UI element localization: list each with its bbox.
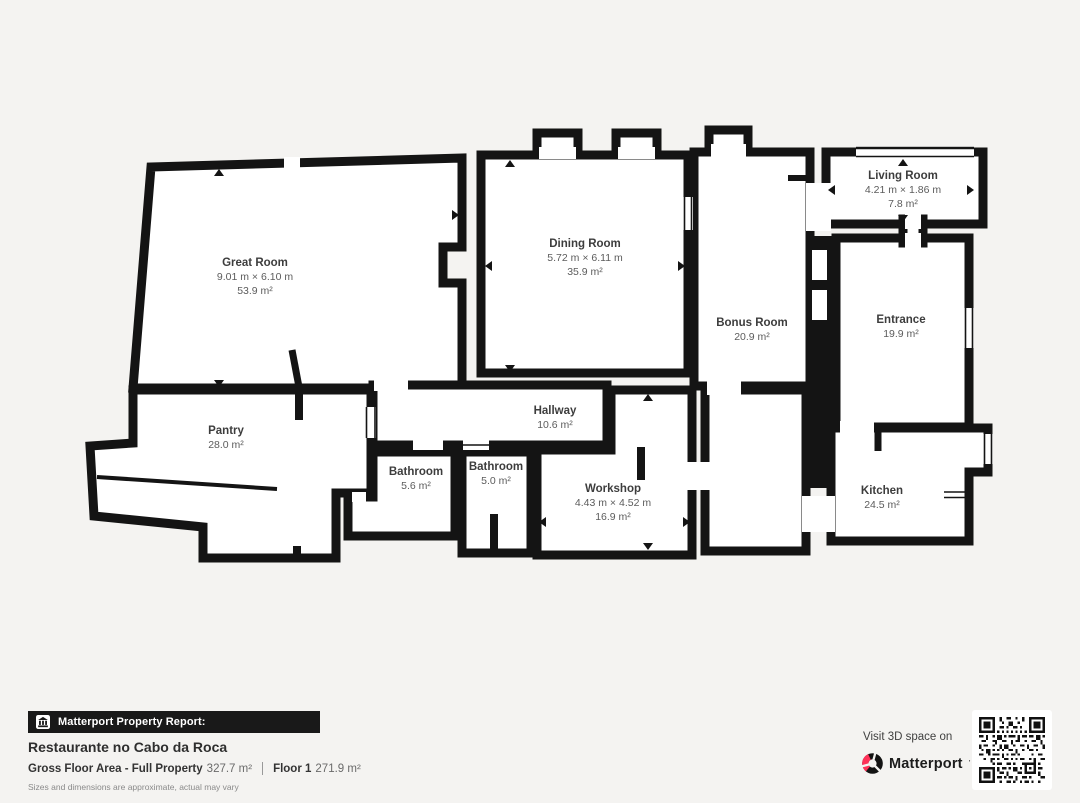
gross-floor-area-value: 327.7 m² bbox=[207, 763, 252, 775]
room-shape-store bbox=[705, 390, 806, 551]
room-area: 35.9 m² bbox=[547, 265, 622, 279]
room-area: 20.9 m² bbox=[716, 330, 788, 344]
report-bar-label: Matterport Property Report: bbox=[58, 716, 206, 728]
room-label-hallway: Hallway 10.6 m² bbox=[534, 404, 577, 432]
room-dimensions: 5.72 m × 6.11 m bbox=[547, 251, 622, 265]
room-name: Bathroom bbox=[389, 465, 443, 479]
room-name: Kitchen bbox=[861, 484, 903, 498]
room-dimensions: 9.01 m × 6.10 m bbox=[217, 270, 293, 284]
report-header-bar: Matterport Property Report: bbox=[28, 711, 320, 733]
floor-value: 271.9 m² bbox=[315, 763, 360, 775]
room-label-bathroom-2: Bathroom 5.0 m² bbox=[469, 460, 523, 488]
room-name: Entrance bbox=[876, 313, 925, 327]
room-name: Dining Room bbox=[547, 237, 622, 251]
room-label-bonus-room: Bonus Room 20.9 m² bbox=[716, 316, 788, 344]
building-icon bbox=[36, 715, 50, 729]
room-dimensions: 4.43 m × 4.52 m bbox=[575, 496, 651, 510]
room-shape-kitchen bbox=[831, 428, 988, 541]
room-area: 24.5 m² bbox=[861, 498, 903, 512]
room-area: 28.0 m² bbox=[208, 438, 244, 452]
floor-plan bbox=[0, 0, 1080, 803]
room-label-kitchen: Kitchen 24.5 m² bbox=[861, 484, 903, 512]
room-area: 10.6 m² bbox=[534, 418, 577, 432]
gross-floor-area-label: Gross Floor Area - Full Property bbox=[28, 763, 203, 775]
room-name: Bonus Room bbox=[716, 316, 788, 330]
room-name: Workshop bbox=[575, 482, 651, 496]
visit-3d-text: Visit 3D space on bbox=[863, 731, 952, 743]
room-label-workshop: Workshop 4.43 m × 4.52 m 16.9 m² bbox=[575, 482, 651, 524]
floor-label: Floor 1 bbox=[273, 763, 311, 775]
room-name: Bathroom bbox=[469, 460, 523, 474]
floor-area-stats: Gross Floor Area - Full Property 327.7 m… bbox=[28, 762, 361, 775]
room-dimensions: 4.21 m × 1.86 m bbox=[865, 183, 941, 197]
qr-code-image bbox=[979, 717, 1045, 783]
room-label-dining-room: Dining Room 5.72 m × 6.11 m 35.9 m² bbox=[547, 237, 622, 279]
room-label-entrance: Entrance 19.9 m² bbox=[876, 313, 925, 341]
matterport-logo-icon bbox=[861, 752, 884, 775]
room-name: Hallway bbox=[534, 404, 577, 418]
matterport-brand[interactable]: Matterport ’ bbox=[861, 752, 970, 775]
trademark-tick: ’ bbox=[969, 759, 971, 768]
property-title: Restaurante no Cabo da Roca bbox=[28, 739, 227, 755]
room-area: 19.9 m² bbox=[876, 327, 925, 341]
room-shape-pantry bbox=[90, 390, 371, 558]
room-label-pantry: Pantry 28.0 m² bbox=[208, 424, 244, 452]
qr-code[interactable] bbox=[972, 710, 1052, 790]
matterport-wordmark: Matterport bbox=[889, 756, 963, 772]
room-name: Great Room bbox=[217, 256, 293, 270]
room-shape-great-room bbox=[133, 158, 462, 388]
room-name: Living Room bbox=[865, 169, 941, 183]
room-area: 5.6 m² bbox=[389, 479, 443, 493]
room-name: Pantry bbox=[208, 424, 244, 438]
room-area: 5.0 m² bbox=[469, 474, 523, 488]
room-label-living-room: Living Room 4.21 m × 1.86 m 7.8 m² bbox=[865, 169, 941, 211]
room-label-bathroom-1: Bathroom 5.6 m² bbox=[389, 465, 443, 493]
divider bbox=[262, 762, 263, 775]
property-report-page: Great Room 9.01 m × 6.10 m 53.9 m² Dinin… bbox=[0, 0, 1080, 803]
room-shape-bonus-room bbox=[694, 152, 810, 386]
room-label-great-room: Great Room 9.01 m × 6.10 m 53.9 m² bbox=[217, 256, 293, 298]
room-area: 7.8 m² bbox=[865, 197, 941, 211]
room-area: 16.9 m² bbox=[575, 510, 651, 524]
room-area: 53.9 m² bbox=[217, 284, 293, 298]
disclaimer-text: Sizes and dimensions are approximate, ac… bbox=[28, 782, 239, 792]
